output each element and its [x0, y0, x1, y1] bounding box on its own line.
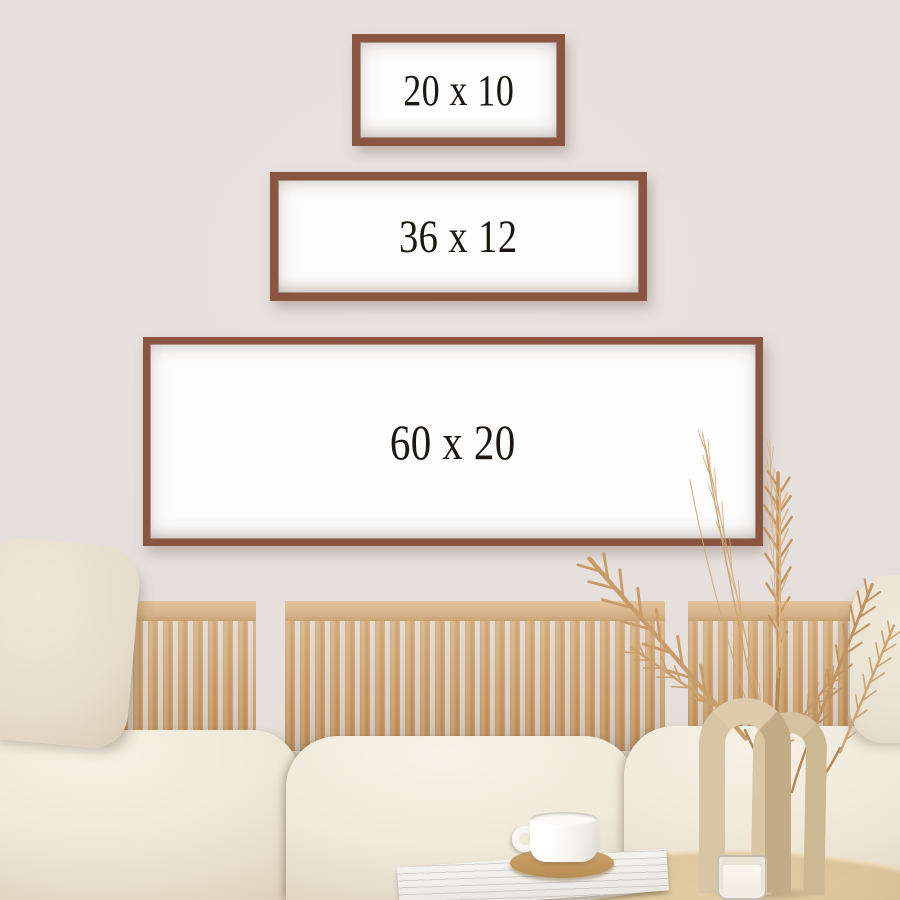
size-label-20x10: 20 x 10 — [403, 65, 514, 116]
size-label-60x20: 60 x 20 — [390, 413, 516, 471]
size-frame-36x12: 36 x 12 — [270, 172, 647, 301]
living-room-size-mockup-scene: 20 x 10 36 x 12 60 x 20 — [0, 0, 900, 900]
sofa-cushion-left — [0, 730, 300, 900]
size-frame-20x10: 20 x 10 — [352, 34, 565, 146]
size-label-36x12: 36 x 12 — [399, 210, 517, 264]
throw-pillow-left — [0, 536, 143, 750]
candle-glass — [717, 855, 767, 900]
